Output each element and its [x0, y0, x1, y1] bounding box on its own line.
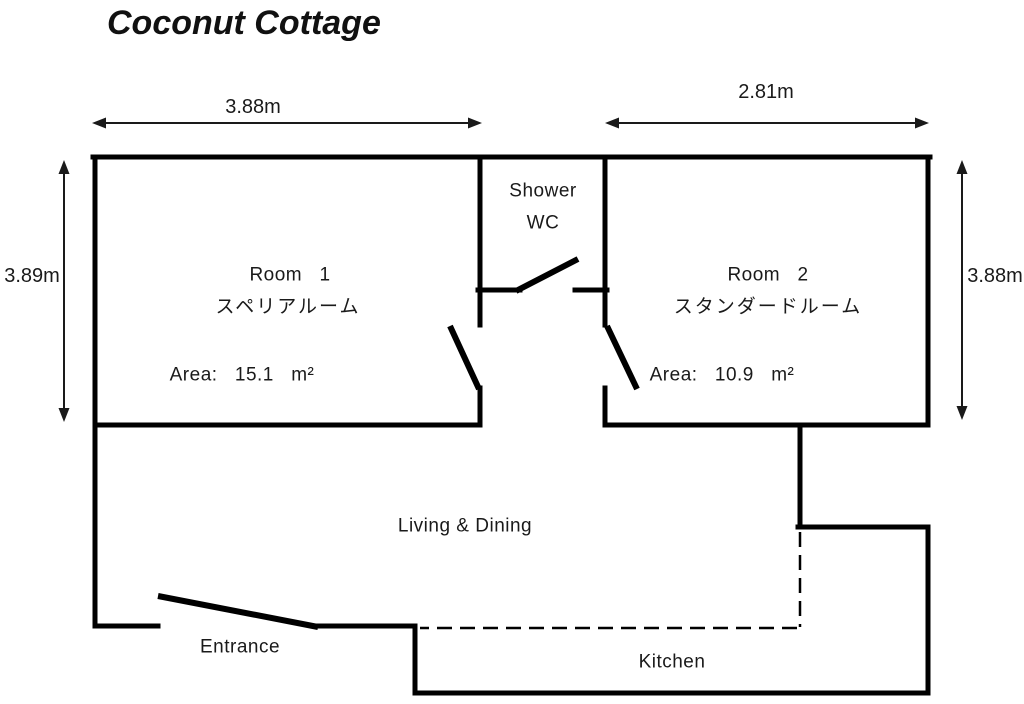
shower-label: Shower: [509, 182, 576, 201]
wc-label: WC: [527, 214, 560, 233]
room1-name-jp: スペリアルーム: [216, 298, 361, 317]
dimension-label-right: 3.88m: [967, 266, 1023, 286]
kitchen-label: Kitchen: [639, 653, 706, 672]
room1-door: [450, 326, 479, 389]
dimension-arrow-right: [957, 160, 968, 420]
entrance-door: [158, 596, 318, 627]
floorplan-drawing: [0, 0, 1024, 704]
room2-area: Area: 10.9 m²: [650, 366, 795, 385]
dimension-label-top-right: 2.81m: [738, 82, 794, 102]
room2-name: Room 2: [727, 266, 808, 285]
living-dining-label: Living & Dining: [398, 517, 532, 536]
dimension-arrow-left: [59, 160, 70, 422]
room1-area: Area: 15.1 m²: [170, 366, 315, 385]
entrance-label: Entrance: [200, 638, 280, 657]
room2-door: [607, 326, 637, 389]
dimension-arrow-top-left: [92, 118, 482, 129]
room1-name: Room 1: [249, 266, 330, 285]
shower-door: [516, 259, 578, 291]
room2-name-jp: スタンダードルーム: [674, 298, 862, 317]
floorplan-page: Coconut Cottage: [0, 0, 1024, 704]
dimension-label-left: 3.89m: [4, 266, 60, 286]
dimension-label-top-left: 3.88m: [225, 97, 281, 117]
dimension-arrow-top-right: [605, 118, 929, 129]
